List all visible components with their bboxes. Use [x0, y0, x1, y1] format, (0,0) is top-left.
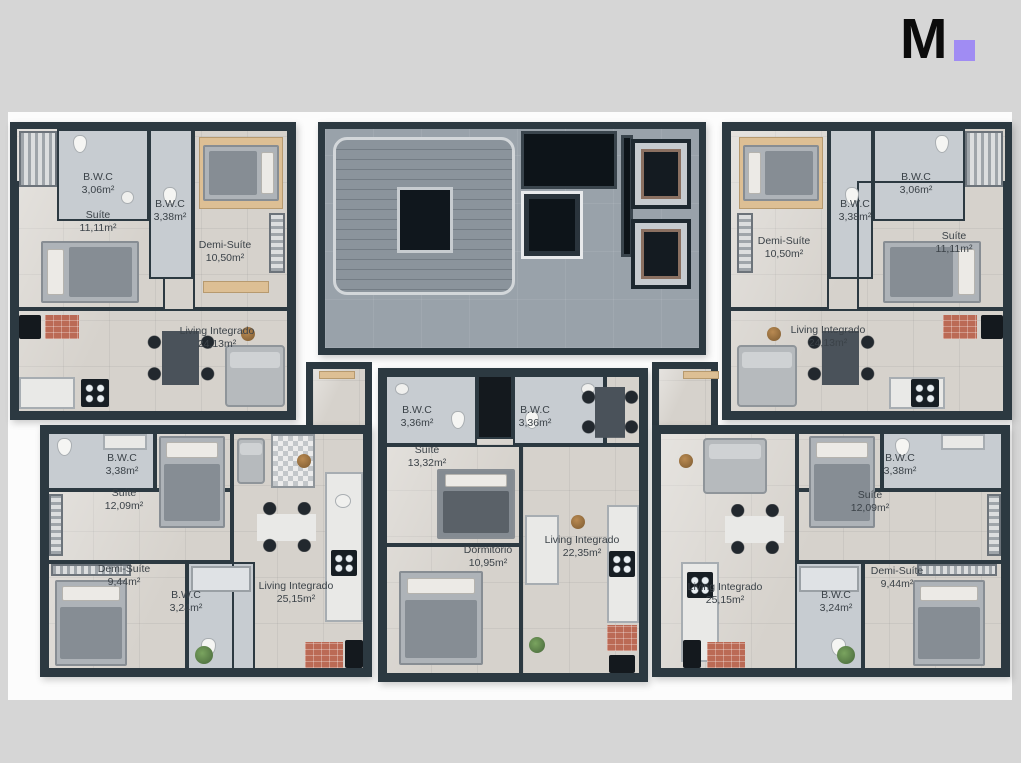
room-area: 3,24m²: [820, 602, 853, 615]
door-sill: [319, 371, 355, 379]
room-name: B.W.C: [154, 198, 187, 211]
closet: [19, 131, 57, 187]
room-name: Demi-Suíte: [199, 239, 252, 252]
room-label-bwc-right: B.W.C 3,36m²: [519, 404, 552, 430]
plant: [767, 327, 781, 341]
room-label-bwc-left: B.W.C 3,36m²: [401, 404, 434, 430]
room-label-suite: Suíte 12,09m²: [105, 487, 144, 513]
room-name: B.W.C: [401, 404, 434, 417]
fridge: [345, 640, 363, 668]
bed: [203, 145, 279, 201]
bed: [55, 580, 127, 666]
plant: [297, 454, 311, 468]
vanity: [103, 434, 147, 450]
room-name: B.W.C: [884, 452, 917, 465]
rug-brick: [607, 625, 637, 651]
plant: [529, 637, 545, 653]
sofa: [737, 345, 797, 407]
room-area: 3,06m²: [82, 184, 115, 197]
bed: [743, 145, 819, 201]
room-area: 24,13m²: [180, 338, 255, 351]
sofa: [703, 438, 767, 494]
fridge: [609, 655, 635, 673]
closet: [269, 213, 285, 273]
elevator-1: [631, 139, 691, 209]
room-area: 9,44m²: [98, 576, 151, 589]
room-label-demi-suite: Demi-Suíte 9,44m²: [871, 565, 924, 591]
rug-brick: [45, 315, 79, 339]
room-name: B.W.C: [170, 589, 203, 602]
room-name: Living Integrado: [688, 581, 763, 594]
brand-logo: M: [900, 14, 975, 64]
door-sill: [683, 371, 719, 379]
room-area: 3,36m²: [401, 417, 434, 430]
room-area: 13,32m²: [408, 457, 447, 470]
kitchen-counter: [19, 377, 75, 409]
room-label-bwc-large: B.W.C 3,38m²: [154, 198, 187, 224]
room-name: Suíte: [936, 230, 973, 243]
closet: [917, 564, 997, 576]
closet: [49, 494, 63, 556]
unit-bottom-right-service-wing: [652, 362, 718, 434]
room-area: 11,11m²: [80, 222, 117, 235]
sink: [335, 494, 351, 508]
room-label-living: Living Integrado 24,13m²: [791, 324, 866, 350]
vanity: [941, 434, 985, 450]
rug-brick: [305, 642, 343, 668]
room-area: 3,38m²: [154, 211, 187, 224]
bed: [159, 436, 225, 528]
room-area: 3,06m²: [900, 184, 933, 197]
room-name: B.W.C: [839, 198, 872, 211]
room-area: 3,36m²: [519, 417, 552, 430]
armchair: [237, 438, 265, 484]
closet: [737, 213, 753, 273]
room-area: 25,15m²: [259, 593, 334, 606]
rug-brick: [707, 642, 745, 668]
unit-bottom-center: B.W.C 3,36m² B.W.C 3,36m² Suíte 13,32m² …: [378, 368, 648, 682]
room-name: B.W.C: [900, 171, 933, 184]
plant: [837, 646, 855, 664]
room-name: Suíte: [80, 209, 117, 222]
room-area: 24,13m²: [791, 337, 866, 350]
room-name: Dormitório: [464, 544, 512, 557]
room-label-demi-suite: Demi-Suíte 10,50m²: [199, 239, 252, 265]
room-area: 9,44m²: [871, 578, 924, 591]
stair-core: [397, 187, 453, 253]
room-name: Demi-Suíte: [758, 235, 811, 248]
room-label-bwc-top: B.W.C 3,38m²: [106, 452, 139, 478]
unit-bottom-right: Living Integrado 25,15m² Suíte 12,09m² B…: [652, 425, 1010, 677]
room-label-bwc-large: B.W.C 3,38m²: [839, 198, 872, 224]
room-name: Demi-Suíte: [98, 563, 151, 576]
room-area: 3,24m²: [170, 602, 203, 615]
stove: [331, 550, 357, 576]
unit-bottom-left: B.W.C 3,38m² Suíte 12,09m² Demi-Suíte 9,…: [40, 425, 372, 677]
room-label-living: Living Integrado 24,13m²: [180, 325, 255, 351]
machine-room: [521, 191, 583, 259]
dining-table: [251, 502, 323, 552]
room-label-dormitorio: Dormitório 10,95m²: [464, 544, 512, 570]
page: { "logo": { "letter": "M" }, "theme": { …: [0, 0, 1021, 763]
closet: [965, 131, 1003, 187]
unit-top-left: Suíte 11,11m² B.W.C 3,06m² B.W.C 3,38m² …: [10, 122, 296, 420]
room-name: Suíte: [105, 487, 144, 500]
duct-shaft: [477, 375, 513, 439]
plant: [679, 454, 693, 468]
room-label-bwc-top: B.W.C 3,38m²: [884, 452, 917, 478]
room-name: Suíte: [851, 489, 890, 502]
room-area: 3,38m²: [839, 211, 872, 224]
stove: [81, 379, 109, 407]
common-core: [318, 122, 706, 355]
bed: [437, 469, 515, 539]
sofa: [225, 345, 285, 407]
room-name: Living Integrado: [791, 324, 866, 337]
brand-logo-letter: M: [900, 14, 944, 64]
room-area: 3,38m²: [106, 465, 139, 478]
room-label-demi-suite: Demi-Suíte 9,44m²: [98, 563, 151, 589]
stove: [911, 379, 939, 407]
bed: [399, 571, 483, 665]
room-label-bwc-bottom: B.W.C 3,24m²: [820, 589, 853, 615]
room-label-suite: Suíte 12,09m²: [851, 489, 890, 515]
room-name: B.W.C: [820, 589, 853, 602]
sink: [121, 191, 134, 204]
room-label-living: Living Integrado 25,15m²: [688, 581, 763, 607]
unit-top-right: Demi-Suíte 10,50m² B.W.C 3,38m² B.W.C 3,…: [722, 122, 1012, 420]
room-area: 10,95m²: [464, 557, 512, 570]
room-label-bwc-small: B.W.C 3,06m²: [82, 171, 115, 197]
room-label-living: Living Integrado 25,15m²: [259, 580, 334, 606]
fridge: [981, 315, 1003, 339]
room-name: Suíte: [408, 444, 447, 457]
room-area: 22,35m²: [545, 547, 620, 560]
room-area: 3,38m²: [884, 465, 917, 478]
room-area: 12,09m²: [105, 500, 144, 513]
rug-brick: [943, 315, 977, 339]
room-name: Living Integrado: [545, 534, 620, 547]
closet: [987, 494, 1001, 556]
dining-table: [581, 381, 639, 443]
room-area: 10,50m²: [199, 252, 252, 265]
room-area: 12,09m²: [851, 502, 890, 515]
room-label-demi-suite: Demi-Suíte 10,50m²: [758, 235, 811, 261]
room-area: 25,15m²: [688, 594, 763, 607]
room-label-suite: Suíte 13,32m²: [408, 444, 447, 470]
fridge: [683, 640, 701, 668]
brand-logo-square: [954, 40, 975, 61]
service-shaft: [521, 131, 617, 189]
room-name: Living Integrado: [180, 325, 255, 338]
dining-table: [719, 504, 791, 554]
room-label-suite: Suíte 11,11m²: [80, 209, 117, 235]
room-area: 11,11m²: [936, 243, 973, 256]
bed: [41, 241, 139, 303]
sink: [395, 383, 409, 395]
plant: [571, 515, 585, 529]
room-label-bwc-bottom: B.W.C 3,24m²: [170, 589, 203, 615]
room-label-suite: Suíte 11,11m²: [936, 230, 973, 256]
fridge: [19, 315, 41, 339]
bed: [913, 580, 985, 666]
unit-bottom-left-service-wing: [306, 362, 372, 434]
room-name: Living Integrado: [259, 580, 334, 593]
room-name: B.W.C: [106, 452, 139, 465]
plant: [195, 646, 213, 664]
dresser: [203, 281, 269, 293]
elevator-2: [631, 219, 691, 289]
room-name: B.W.C: [82, 171, 115, 184]
room-name: B.W.C: [519, 404, 552, 417]
room-label-living: Living Integrado 22,35m²: [545, 534, 620, 560]
room-area: 10,50m²: [758, 248, 811, 261]
room-name: Demi-Suíte: [871, 565, 924, 578]
room-label-bwc-small: B.W.C 3,06m²: [900, 171, 933, 197]
